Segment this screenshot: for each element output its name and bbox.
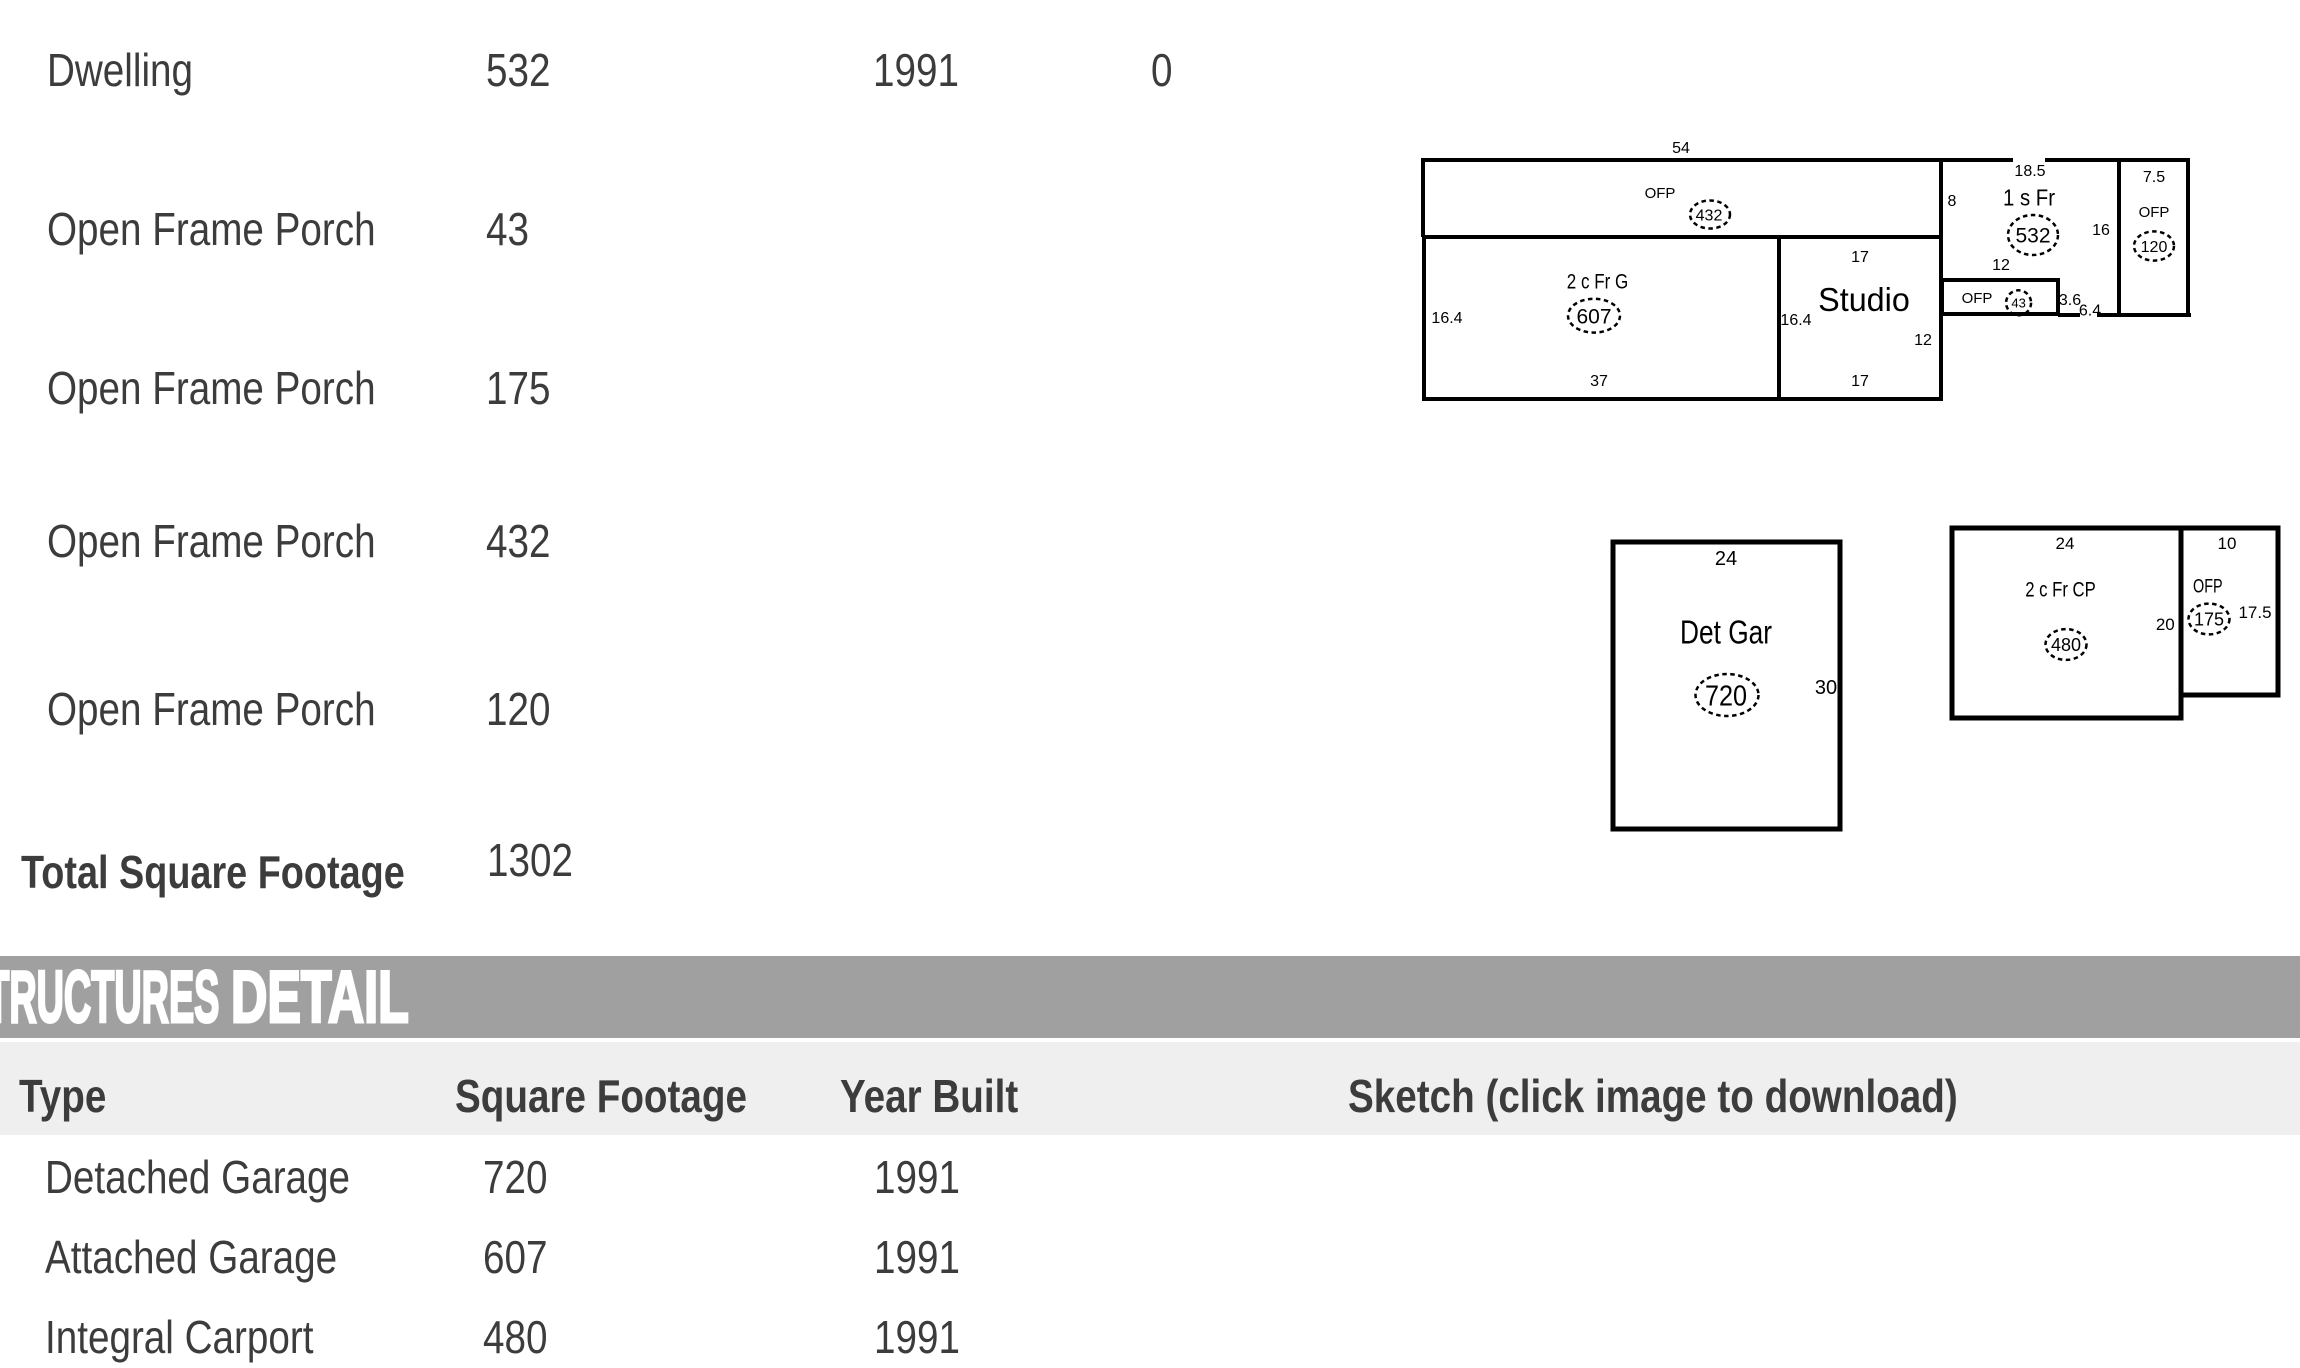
svg-text:2 c Fr G: 2 c Fr G [1567, 270, 1628, 293]
svg-text:2 c Fr CP: 2 c Fr CP [2025, 579, 2096, 602]
svg-text:OFP: OFP [2139, 204, 2170, 221]
svg-text:Studio: Studio [1818, 282, 1910, 319]
svg-text:16.4: 16.4 [1780, 312, 1811, 329]
svg-text:17: 17 [1851, 373, 1869, 390]
svg-text:OFP: OFP [1962, 290, 1993, 307]
svg-text:OFP: OFP [2193, 577, 2223, 598]
svg-text:7.5: 7.5 [2143, 169, 2165, 186]
svg-text:OFP: OFP [1645, 185, 1676, 202]
svg-text:432: 432 [1696, 207, 1723, 224]
svg-text:54: 54 [1672, 140, 1690, 157]
svg-text:480: 480 [2051, 635, 2081, 655]
svg-text:43: 43 [2011, 296, 2025, 311]
svg-text:8: 8 [1948, 193, 1957, 210]
svg-text:120: 120 [2141, 239, 2168, 256]
svg-text:175: 175 [2194, 610, 2224, 630]
svg-text:12: 12 [1992, 257, 2010, 274]
svg-text:37: 37 [1590, 373, 1608, 390]
svg-text:24: 24 [1715, 548, 1737, 570]
svg-text:1 s Fr: 1 s Fr [2003, 185, 2055, 211]
svg-text:720: 720 [1705, 680, 1747, 712]
svg-text:17: 17 [1851, 249, 1869, 266]
svg-text:6.4: 6.4 [2079, 303, 2101, 320]
svg-text:532: 532 [2015, 225, 2050, 248]
svg-text:24: 24 [2056, 534, 2075, 553]
svg-text:30: 30 [1815, 677, 1837, 699]
svg-text:18.5: 18.5 [2014, 163, 2045, 180]
svg-text:12: 12 [1914, 332, 1932, 349]
svg-text:3.6: 3.6 [2059, 292, 2081, 309]
svg-text:10: 10 [2218, 534, 2237, 553]
svg-text:20: 20 [2156, 615, 2175, 634]
svg-text:17.5: 17.5 [2238, 603, 2271, 622]
svg-text:607: 607 [1576, 305, 1611, 328]
svg-text:Det Gar: Det Gar [1680, 613, 1772, 650]
svg-text:16.4: 16.4 [1431, 310, 1462, 327]
svg-text:16: 16 [2092, 222, 2110, 239]
